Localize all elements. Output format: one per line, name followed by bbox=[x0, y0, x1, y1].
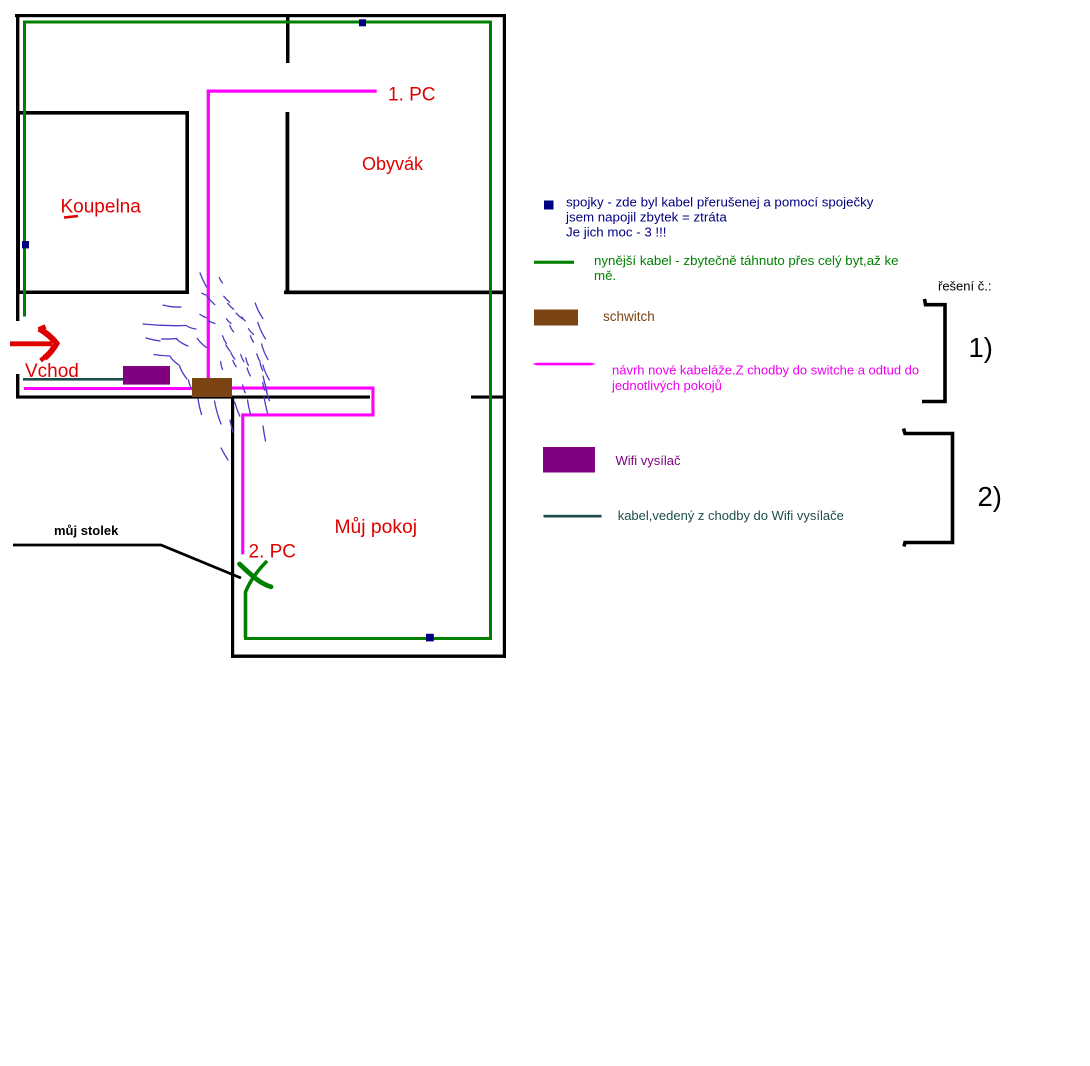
svg-text:Vchod: Vchod bbox=[25, 361, 79, 382]
svg-text:Wifi vysílač: Wifi vysílač bbox=[616, 453, 682, 468]
svg-text:řešení č.:: řešení č.: bbox=[938, 279, 991, 294]
svg-text:1): 1) bbox=[969, 332, 993, 363]
svg-text:Můj pokoj: Můj pokoj bbox=[335, 516, 418, 538]
svg-text:2): 2) bbox=[978, 481, 1002, 512]
svg-text:Koupelna: Koupelna bbox=[61, 197, 142, 218]
svg-text:nynější kabel - zbytečně táhnu: nynější kabel - zbytečně táhnuto přes ce… bbox=[594, 253, 899, 268]
svg-text:návrh nové kabeláže.Z chodby d: návrh nové kabeláže.Z chodby do switche … bbox=[612, 362, 919, 377]
svg-text:mě.: mě. bbox=[594, 268, 616, 283]
svg-text:schwitch: schwitch bbox=[603, 309, 655, 324]
svg-text:2. PC: 2. PC bbox=[249, 542, 297, 563]
svg-text:jsem napojil zbytek = ztráta: jsem napojil zbytek = ztráta bbox=[565, 210, 727, 225]
svg-text:můj stolek: můj stolek bbox=[54, 523, 119, 538]
svg-text:spojky - zde byl kabel přeruše: spojky - zde byl kabel přerušenej a pomo… bbox=[566, 194, 874, 209]
svg-text:Je jich moc - 3 !!!: Je jich moc - 3 !!! bbox=[566, 225, 667, 240]
svg-text:kabel,vedený z chodby do Wifi: kabel,vedený z chodby do Wifi vysílače bbox=[618, 508, 844, 523]
svg-text:Obyvák: Obyvák bbox=[362, 154, 424, 174]
svg-text:jednotlivých pokojů: jednotlivých pokojů bbox=[611, 378, 722, 393]
svg-text:1. PC: 1. PC bbox=[388, 85, 436, 106]
